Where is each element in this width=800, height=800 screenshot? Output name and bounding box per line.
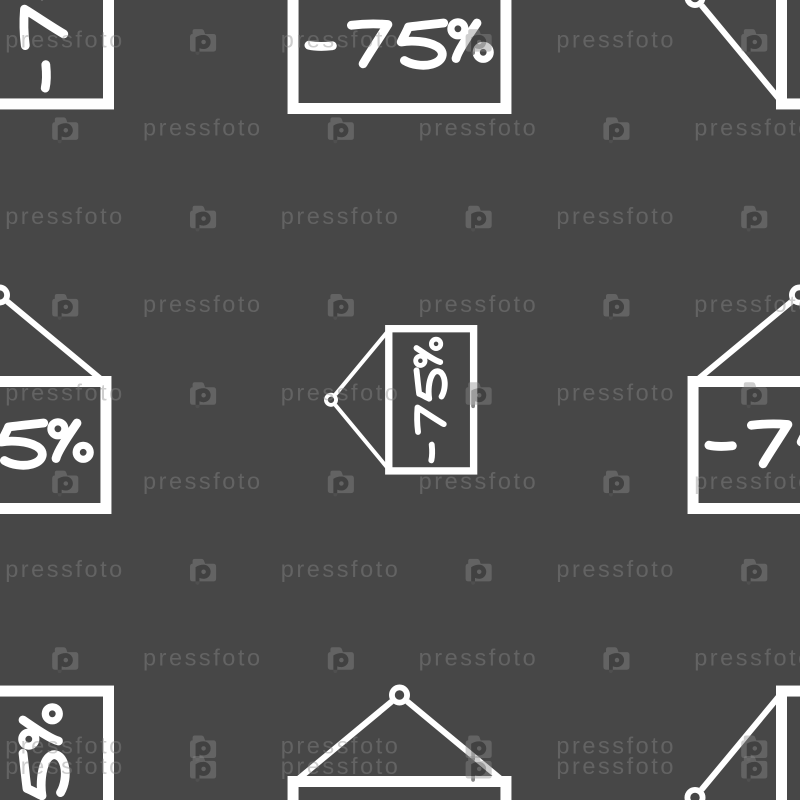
svg-text:pressfoto: pressfoto: [419, 468, 539, 494]
svg-text:pressfoto: pressfoto: [694, 644, 800, 670]
svg-text:pressfoto: pressfoto: [5, 753, 125, 779]
svg-text:pressfoto: pressfoto: [143, 115, 263, 141]
svg-text:pressfoto: pressfoto: [556, 203, 676, 229]
svg-text:pressfoto: pressfoto: [556, 753, 676, 779]
svg-text:pressfoto: pressfoto: [143, 291, 263, 317]
svg-text:pressfoto: pressfoto: [281, 380, 401, 406]
svg-text:pressfoto: pressfoto: [5, 556, 125, 582]
svg-text:pressfoto: pressfoto: [281, 203, 401, 229]
svg-text:pressfoto: pressfoto: [5, 380, 125, 406]
svg-text:pressfoto: pressfoto: [694, 468, 800, 494]
svg-text:pressfoto: pressfoto: [143, 468, 263, 494]
svg-text:pressfoto: pressfoto: [556, 556, 676, 582]
svg-text:pressfoto: pressfoto: [419, 115, 539, 141]
svg-text:pressfoto: pressfoto: [5, 26, 125, 52]
svg-text:pressfoto: pressfoto: [694, 115, 800, 141]
svg-text:pressfoto: pressfoto: [5, 203, 125, 229]
svg-text:pressfoto: pressfoto: [419, 644, 539, 670]
svg-text:pressfoto: pressfoto: [694, 291, 800, 317]
svg-text:pressfoto: pressfoto: [556, 380, 676, 406]
svg-text:pressfoto: pressfoto: [419, 291, 539, 317]
svg-text:pressfoto: pressfoto: [281, 556, 401, 582]
svg-text:pressfoto: pressfoto: [143, 644, 263, 670]
svg-text:pressfoto: pressfoto: [281, 753, 401, 779]
svg-text:pressfoto: pressfoto: [556, 26, 676, 52]
svg-text:pressfoto: pressfoto: [281, 26, 401, 52]
